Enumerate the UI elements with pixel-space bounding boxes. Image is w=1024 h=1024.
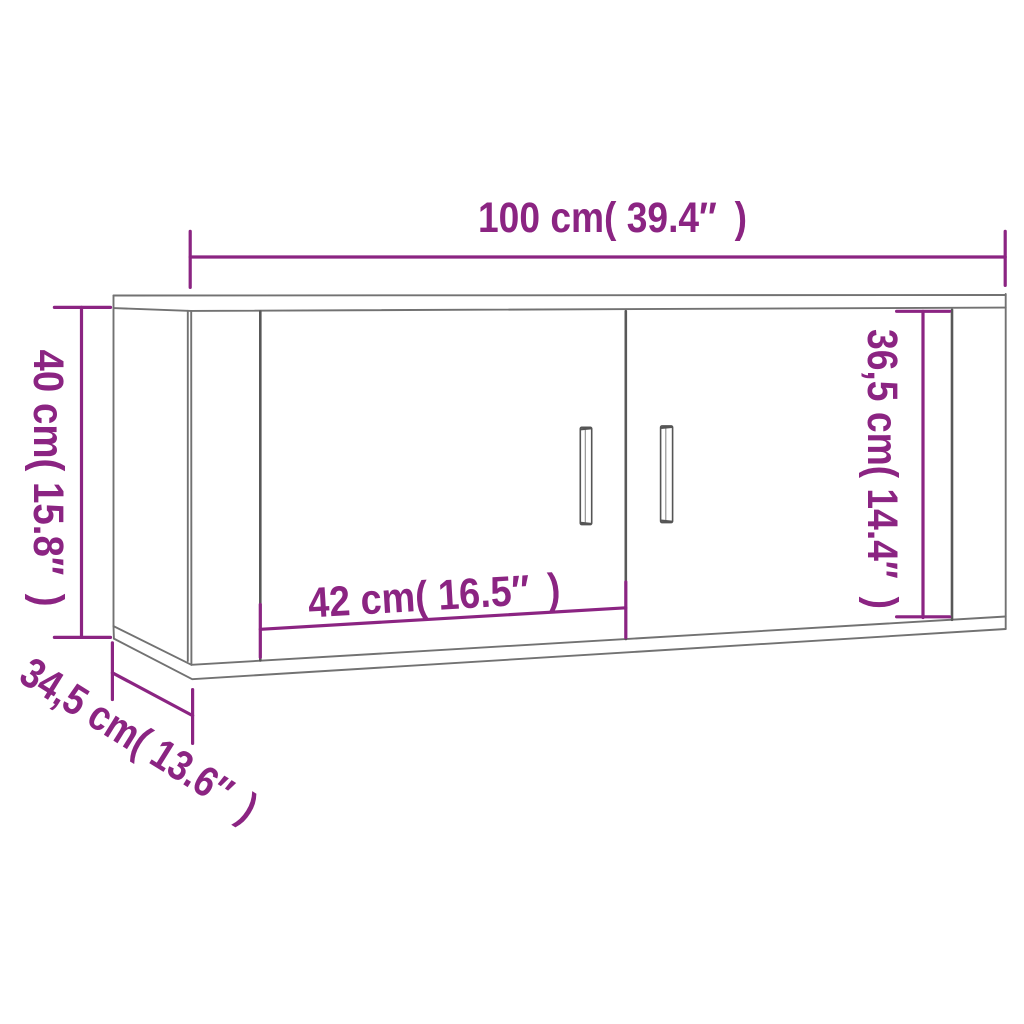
svg-text:42 cm( 16.5″ ): 42 cm( 16.5″ ) <box>307 566 562 628</box>
svg-text:40 cm( 15.8″ ): 40 cm( 15.8″ ) <box>24 350 71 607</box>
svg-text:36,5 cm( 14.4″ ): 36,5 cm( 14.4″ ) <box>858 329 905 609</box>
svg-text:100 cm( 39.4″ ): 100 cm( 39.4″ ) <box>478 195 747 242</box>
